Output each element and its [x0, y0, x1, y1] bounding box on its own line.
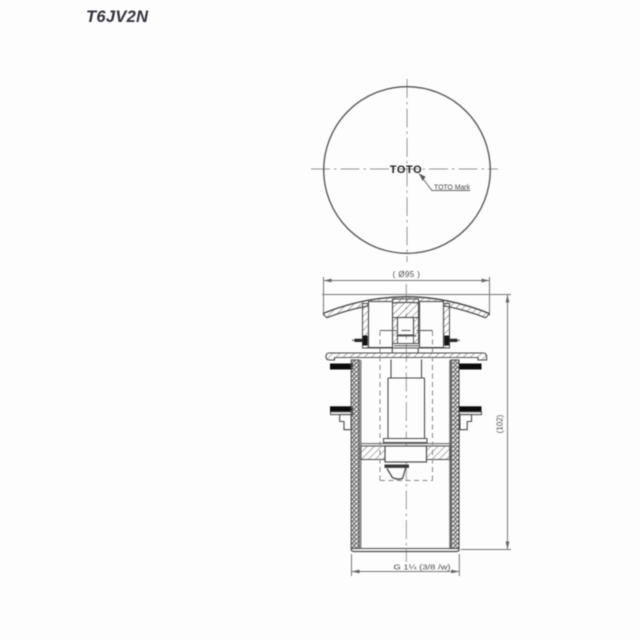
svg-text:(102): (102): [496, 414, 505, 433]
svg-text:G 1¼ (3/8 /w): G 1¼ (3/8 /w): [394, 565, 451, 572]
svg-text:TOTO: TOTO: [390, 164, 423, 176]
svg-text:( Ø95 ): ( Ø95 ): [393, 270, 421, 279]
svg-text:TOTO Mark: TOTO Mark: [434, 183, 470, 192]
svg-text:T6JV2N: T6JV2N: [86, 8, 149, 26]
